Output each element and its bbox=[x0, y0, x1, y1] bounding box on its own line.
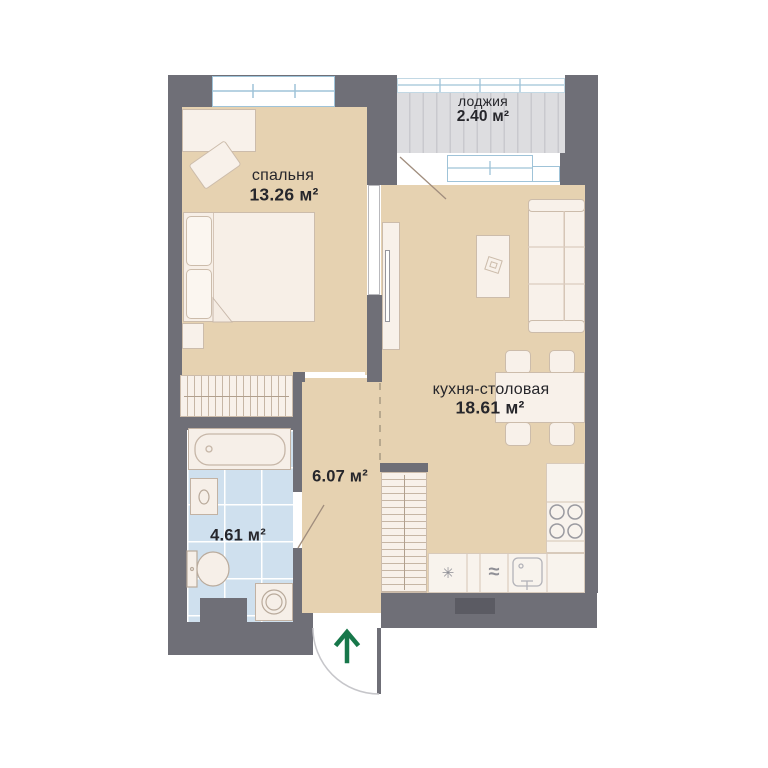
wall-right bbox=[585, 185, 598, 593]
bed-pillow-bottom bbox=[186, 269, 212, 319]
entry-arrow-icon bbox=[337, 632, 357, 661]
wall-pier-bedroom-loggia bbox=[367, 75, 397, 185]
sofa-back bbox=[564, 210, 585, 322]
hallway-area: 6.07 м² bbox=[312, 468, 368, 487]
wall-bath-corner bbox=[302, 613, 313, 625]
loggia-label: лоджия bbox=[458, 93, 508, 109]
bedroom-door-opening bbox=[305, 372, 365, 378]
dining-chair-bottom-left bbox=[505, 422, 531, 446]
nightstand bbox=[182, 323, 204, 349]
entrance-door-leaf bbox=[377, 628, 381, 694]
kitchen-counter-column bbox=[546, 463, 585, 553]
loggia-glazing-band bbox=[397, 78, 565, 93]
fridge-snowflake-icon: ✳ bbox=[433, 555, 463, 591]
vent-shaft bbox=[455, 598, 495, 614]
sofa-armrest-top bbox=[528, 199, 585, 212]
bedroom-wardrobe bbox=[180, 375, 293, 417]
dining-chair-top-right bbox=[549, 350, 575, 374]
bedroom-window bbox=[212, 76, 335, 107]
wall-left bbox=[168, 107, 182, 624]
bedroom-area: 13.26 м² bbox=[249, 185, 318, 206]
bathroom-area: 4.61 м² bbox=[210, 527, 266, 546]
wardrobe-rail bbox=[184, 396, 288, 397]
bedroom-label: спальня bbox=[252, 167, 314, 185]
bathtub bbox=[188, 428, 291, 470]
entrance-door-opening bbox=[313, 613, 381, 628]
wall-bathroom-right-upper bbox=[293, 430, 302, 492]
washing-machine bbox=[255, 583, 293, 621]
hall-closet bbox=[381, 472, 427, 593]
hallway-kitchen-boundary bbox=[379, 383, 381, 463]
kitchen-dining-area: 18.61 м² bbox=[455, 398, 524, 419]
wall-bath-notch bbox=[200, 598, 247, 622]
tv bbox=[385, 250, 390, 322]
wall-window-pier bbox=[560, 153, 585, 185]
wall-left-thick-bath bbox=[182, 417, 187, 622]
bed-mattress-divider bbox=[213, 213, 214, 321]
loggia-area: 2.40 м² bbox=[457, 108, 510, 126]
wall-bedroom-kitchen-lower bbox=[367, 295, 382, 382]
kitchen-window-small bbox=[532, 166, 560, 182]
dishwasher-waves-icon: ≈ bbox=[482, 553, 506, 591]
wall-closet-top bbox=[380, 463, 428, 472]
entrance-door-arc bbox=[313, 628, 379, 694]
bed-pillow-top bbox=[186, 216, 212, 266]
sofa-armrest-bottom bbox=[528, 320, 585, 333]
kitchen-window bbox=[447, 155, 533, 182]
wall-bottom-left bbox=[168, 622, 313, 655]
hall-closet-rail bbox=[404, 475, 405, 589]
hallway-floor bbox=[302, 378, 382, 613]
floor-plan: ✳ ≈ bbox=[0, 0, 768, 768]
dining-chair-top-left bbox=[505, 350, 531, 374]
dining-chair-bottom-right bbox=[549, 422, 575, 446]
kitchen-dining-label: кухня-столовая bbox=[433, 381, 550, 399]
partition-bedroom-kitchen bbox=[368, 185, 380, 295]
wall-bathroom-right-lower bbox=[293, 548, 302, 622]
sofa-seat bbox=[528, 210, 566, 322]
washbasin bbox=[190, 478, 218, 515]
